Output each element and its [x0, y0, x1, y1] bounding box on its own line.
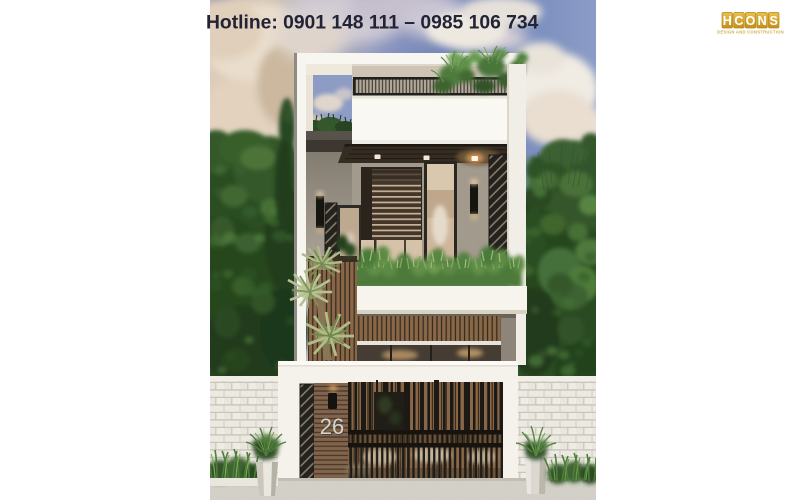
svg-text:C: C [734, 14, 743, 28]
svg-text:O: O [746, 14, 756, 28]
svg-text:H: H [723, 14, 732, 28]
svg-text:DESIGN AND CONSTRUCTION: DESIGN AND CONSTRUCTION [717, 30, 784, 35]
svg-text:N: N [758, 14, 767, 28]
svg-text:Hotline: 0901 148 111 – 0985 1: Hotline: 0901 148 111 – 0985 106 734 [206, 12, 539, 33]
svg-text:S: S [770, 14, 778, 28]
svg-text:26: 26 [320, 414, 344, 439]
